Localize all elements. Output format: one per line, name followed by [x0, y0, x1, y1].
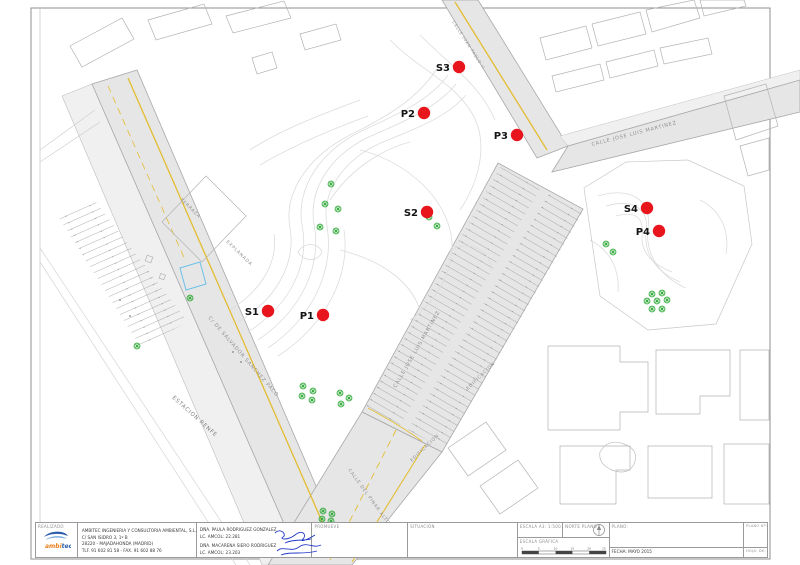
tree-icon	[310, 388, 316, 394]
tree-icon	[337, 390, 343, 396]
tree-icon	[603, 241, 609, 247]
tree-icon	[434, 223, 440, 229]
company-name: AMBITEC INGENIERIA Y CONSULTORIA AMBIENT…	[82, 528, 194, 535]
escala-label: ESCALA A3: 1:500	[520, 524, 561, 529]
sample-point-label-s3: S3	[436, 63, 450, 74]
titleblock-company-cell: AMBITEC INGENIERIA Y CONSULTORIA AMBIENT…	[78, 523, 197, 557]
escala-grafica-label: ESCALA GRÁFICA	[520, 539, 559, 544]
svg-text:ambitec: ambitec	[45, 543, 71, 550]
tree-icon	[320, 508, 326, 514]
sample-point-label-p4: P4	[636, 227, 650, 238]
norte-subcell: NORTE PLANO	[563, 523, 608, 537]
sample-point-s1	[262, 305, 274, 317]
logo-text-ambi: ambi	[45, 543, 63, 550]
titleblock-plano-cell: PLANO: FECHA: MAYO 2015	[610, 523, 745, 557]
tree-icon	[309, 397, 315, 403]
sample-point-s2	[421, 206, 433, 218]
hoja-label: HOJA: DE:	[746, 549, 766, 553]
tree-icon	[299, 393, 305, 399]
tree-icon	[333, 228, 339, 234]
sample-point-label-p1: P1	[300, 311, 314, 322]
fecha-label: FECHA: MAYO 2015	[612, 549, 652, 554]
signature-1	[275, 531, 315, 543]
scale-tick-10: 10	[553, 547, 557, 551]
escala-grafica-subcell: ESCALA GRÁFICA 0 5 10 15 20 25	[518, 538, 609, 557]
titleblock-sheetnum-cell: PLANO Nº: HOJA: DE:	[744, 523, 767, 557]
sample-point-label-p3: P3	[494, 131, 508, 142]
sample-point-label-s1: S1	[245, 307, 259, 318]
tree-icon	[346, 395, 352, 401]
situacion-label: SITUACIÓN	[410, 524, 435, 529]
title-block: REALIZADO ambitec AMBITEC INGENIERIA Y C…	[35, 522, 768, 558]
tree-icon	[187, 295, 193, 301]
scale-tick-15: 15	[570, 547, 574, 551]
signatures	[273, 525, 325, 557]
company-phone: TLF. 91 602 81 58 - FAX. 91 602 88 76	[82, 548, 194, 555]
tree-icon	[322, 201, 328, 207]
tree-icon	[649, 291, 655, 297]
tree-icon	[134, 343, 140, 349]
site-plan-canvas: CALLE JOSE LUIS MARTINEZ CALLE JOSE LUIS…	[0, 0, 800, 565]
sample-point-p4	[653, 225, 665, 237]
company-logo: ambitec	[41, 529, 71, 551]
titleblock-promueve-cell: PROMUEVE	[312, 523, 408, 557]
tree-icon	[659, 290, 665, 296]
titleblock-scale-cell: ESCALA A3: 1:500 NORTE PLANO ESCALA GRÁF…	[518, 523, 610, 557]
plano-num-label: PLANO Nº:	[746, 524, 767, 528]
tree-icon	[654, 298, 660, 304]
tree-icon	[317, 224, 323, 230]
tree-icon	[335, 206, 341, 212]
sample-point-label-s2: S2	[404, 208, 418, 219]
company-address: C/ SAN ISIDRO 3, 1º B	[82, 535, 194, 542]
graphic-scale-bar: 0 5 10 15 20 25	[520, 546, 608, 556]
tree-icon	[328, 181, 334, 187]
plan-sheet: CALLE JOSE LUIS MARTINEZ CALLE JOSE LUIS…	[0, 0, 800, 565]
titleblock-situacion-cell: SITUACIÓN	[408, 523, 518, 557]
scale-tick-5: 5	[538, 547, 540, 551]
signature-2	[277, 545, 321, 555]
sample-point-label-p2: P2	[401, 109, 415, 120]
company-city: 28220 - MAJADAHONDA (MADRID)	[82, 541, 194, 548]
tree-icon	[338, 401, 344, 407]
escala-subcell: ESCALA A3: 1:500	[518, 523, 563, 537]
tree-icon	[664, 297, 670, 303]
scale-tick-0: 0	[521, 547, 523, 551]
sample-point-p2	[418, 107, 430, 119]
sample-point-p3	[511, 129, 523, 141]
scale-tick-25: 25	[602, 547, 606, 551]
scale-tick-20: 20	[587, 547, 591, 551]
titleblock-realizado-cell: REALIZADO ambitec	[36, 523, 78, 557]
titleblock-signers-cell: DÑA. PAULA RODRIGUEZ GONZALEZ LC. AMCOL:…	[197, 523, 313, 557]
tree-icon	[649, 306, 655, 312]
tree-icon	[329, 511, 335, 517]
norte-label: NORTE PLANO	[565, 524, 597, 529]
sample-point-label-s4: S4	[624, 204, 638, 215]
tree-icon	[610, 249, 616, 255]
plano-label: PLANO:	[612, 524, 629, 529]
logo-text-tec: tec	[62, 543, 71, 550]
realizado-label: REALIZADO	[38, 524, 64, 529]
sample-point-s4	[641, 202, 653, 214]
tree-icon	[644, 298, 650, 304]
sample-point-p1	[317, 309, 329, 321]
tree-icon	[300, 383, 306, 389]
tree-icon	[659, 306, 665, 312]
sample-point-s3	[453, 61, 465, 73]
